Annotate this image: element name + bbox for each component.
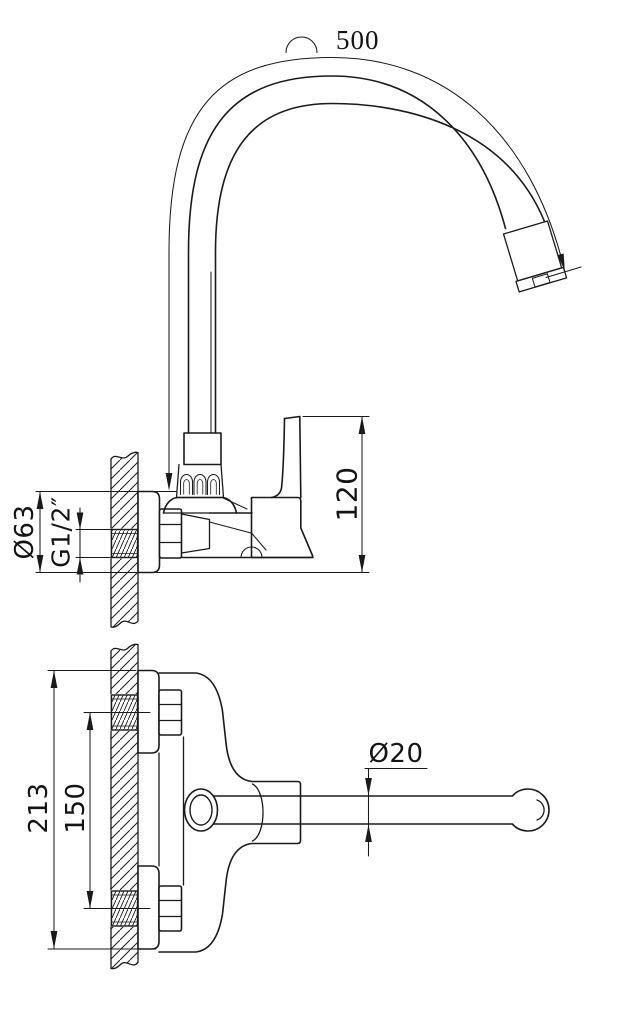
dim-150-label: 150 <box>61 782 91 833</box>
dim-500-arc <box>169 58 564 489</box>
faucet-body-front <box>164 498 314 558</box>
dim-213-label: 213 <box>24 782 54 833</box>
hex-nut-plan-bottom <box>159 886 182 931</box>
wall-flange-plan-top <box>138 671 159 754</box>
wall-flange-front <box>138 492 160 573</box>
dim-500-arrow-start <box>166 473 173 491</box>
plan-view: 213 150 Ø20 <box>24 644 549 968</box>
handle-lever-front <box>272 417 301 498</box>
dim-120-label: 120 <box>331 467 364 522</box>
arc-length-symbol-icon <box>286 37 317 53</box>
dim-20-label: Ø20 <box>368 739 423 769</box>
spout-collar-nut <box>184 433 221 465</box>
spout-base-crown <box>177 433 224 498</box>
hex-nut-plan-top <box>159 690 182 735</box>
spout-tube-plan <box>214 789 549 831</box>
dim-500-label: 500 <box>336 25 380 55</box>
dim-63-label: Ø63 <box>10 504 40 559</box>
spout-aerator-tip <box>504 221 567 292</box>
dim-g12-label: G1/2″ <box>47 496 76 567</box>
dim-500: 500 <box>166 25 581 491</box>
gooseneck-spout <box>189 76 545 433</box>
hex-nut-front <box>160 509 182 558</box>
thread-section-front <box>111 529 139 559</box>
faucet-technical-drawing: 500 Ø63 G1/2″ 120 <box>0 0 621 1024</box>
wall-flange-plan-bottom <box>138 866 159 949</box>
cartridge-housing-front <box>252 498 313 558</box>
drawing-sheet: 500 Ø63 G1/2″ 120 <box>0 0 621 1024</box>
front-view: 500 Ø63 G1/2″ 120 <box>10 25 581 627</box>
spout-pivot-plan <box>185 789 218 831</box>
dim-20: Ø20 <box>365 739 427 856</box>
dim-g12: G1/2″ <box>47 496 111 582</box>
cartridge-cap-plan <box>253 784 264 841</box>
spout-inner-edge <box>216 104 545 434</box>
dim-120: 120 <box>303 417 369 573</box>
